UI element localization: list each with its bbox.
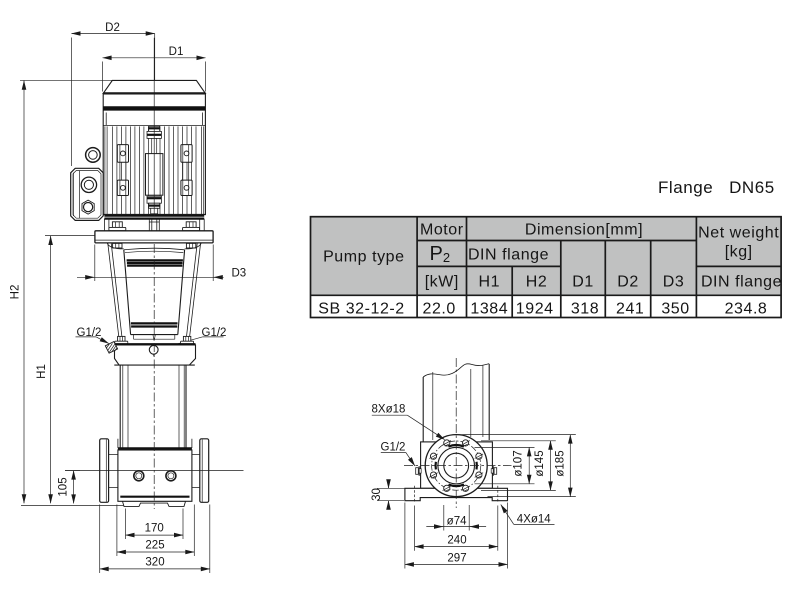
svg-text:1924: 1924	[516, 301, 554, 318]
svg-text:ø185: ø185	[555, 450, 567, 476]
svg-text:170: 170	[145, 523, 164, 535]
svg-text:297: 297	[447, 553, 466, 565]
svg-text:225: 225	[145, 540, 164, 552]
svg-text:8Xø18: 8Xø18	[372, 404, 406, 416]
svg-text:ø145: ø145	[534, 450, 546, 476]
svg-text:Dimension[mm]: Dimension[mm]	[525, 222, 643, 239]
svg-text:H2: H2	[10, 285, 22, 300]
svg-text:[kg]: [kg]	[725, 244, 753, 261]
svg-text:240: 240	[447, 535, 466, 547]
svg-text:30: 30	[371, 488, 383, 501]
svg-text:SB 32-12-2: SB 32-12-2	[318, 301, 404, 318]
svg-text:D3: D3	[232, 267, 247, 279]
svg-text:H2: H2	[526, 273, 548, 290]
svg-text:Net weight: Net weight	[698, 225, 779, 242]
svg-text:Motor: Motor	[420, 222, 464, 239]
svg-text:Flange DN65: Flange DN65	[658, 178, 775, 197]
svg-text:320: 320	[145, 557, 164, 569]
svg-text:D1: D1	[169, 46, 184, 58]
svg-text:4Xø14: 4Xø14	[517, 513, 551, 525]
svg-text:D1: D1	[572, 273, 594, 290]
svg-text:G1/2: G1/2	[381, 442, 406, 454]
svg-text:H1: H1	[36, 364, 48, 379]
svg-text:1384: 1384	[470, 301, 508, 318]
svg-text:D2: D2	[617, 273, 639, 290]
svg-text:H1: H1	[479, 273, 501, 290]
svg-text:Pump type: Pump type	[323, 249, 404, 266]
svg-text:DIN flange: DIN flange	[701, 273, 782, 290]
svg-text:ø107: ø107	[513, 450, 525, 476]
svg-text:22.0: 22.0	[423, 301, 456, 318]
svg-text:DIN flange: DIN flange	[468, 246, 549, 263]
svg-text:318: 318	[571, 301, 599, 318]
svg-text:ø74: ø74	[447, 515, 467, 527]
svg-text:234.8: 234.8	[725, 301, 768, 318]
svg-text:105: 105	[58, 477, 70, 496]
svg-text:350: 350	[661, 301, 689, 318]
svg-text:241: 241	[616, 301, 644, 318]
svg-text:[kW]: [kW]	[425, 273, 459, 290]
svg-text:D3: D3	[663, 273, 685, 290]
svg-text:D2: D2	[105, 22, 120, 34]
